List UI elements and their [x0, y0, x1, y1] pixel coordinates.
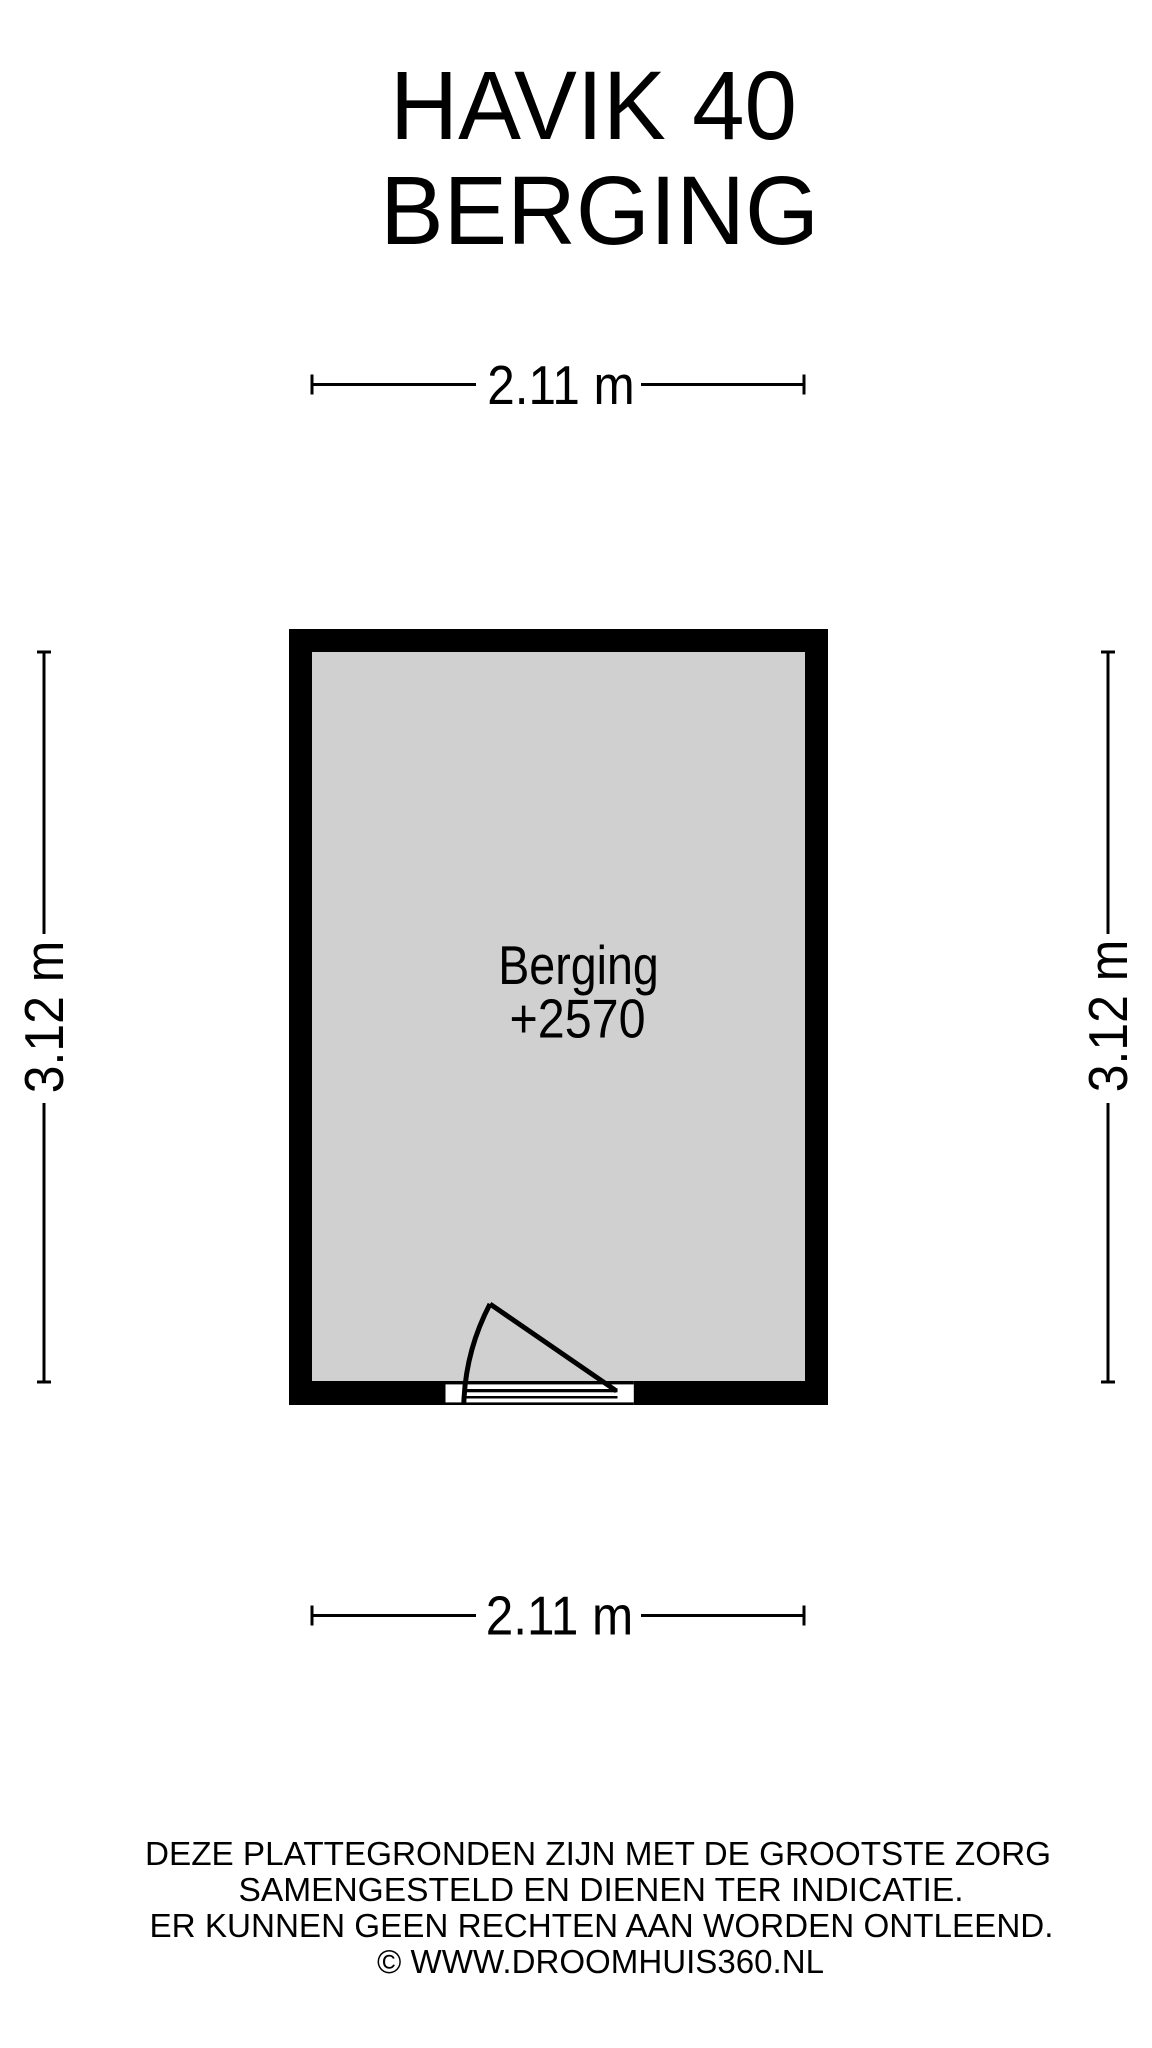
svg-text:3.12 m: 3.12 m [14, 941, 75, 1094]
svg-text:ER KUNNEN GEEN RECHTEN AAN WOR: ER KUNNEN GEEN RECHTEN AAN WORDEN ONTLEE… [150, 1908, 1054, 1945]
svg-text:2.11 m: 2.11 m [487, 355, 635, 416]
svg-text:+2570: +2570 [510, 989, 646, 1050]
svg-text:BERGING: BERGING [380, 156, 819, 265]
svg-text:SAMENGESTELD EN DIENEN TER IND: SAMENGESTELD EN DIENEN TER INDICATIE. [239, 1872, 964, 1909]
svg-text:Berging: Berging [498, 935, 659, 996]
svg-text:2.11 m: 2.11 m [486, 1585, 634, 1646]
svg-text:DEZE PLATTEGRONDEN ZIJN MET DE: DEZE PLATTEGRONDEN ZIJN MET DE GROOTSTE … [145, 1836, 1051, 1873]
svg-text:HAVIK 40: HAVIK 40 [390, 51, 797, 160]
svg-text:3.12 m: 3.12 m [1078, 940, 1139, 1093]
svg-text:© WWW.DROOMHUIS360.NL: © WWW.DROOMHUIS360.NL [377, 1944, 824, 1981]
